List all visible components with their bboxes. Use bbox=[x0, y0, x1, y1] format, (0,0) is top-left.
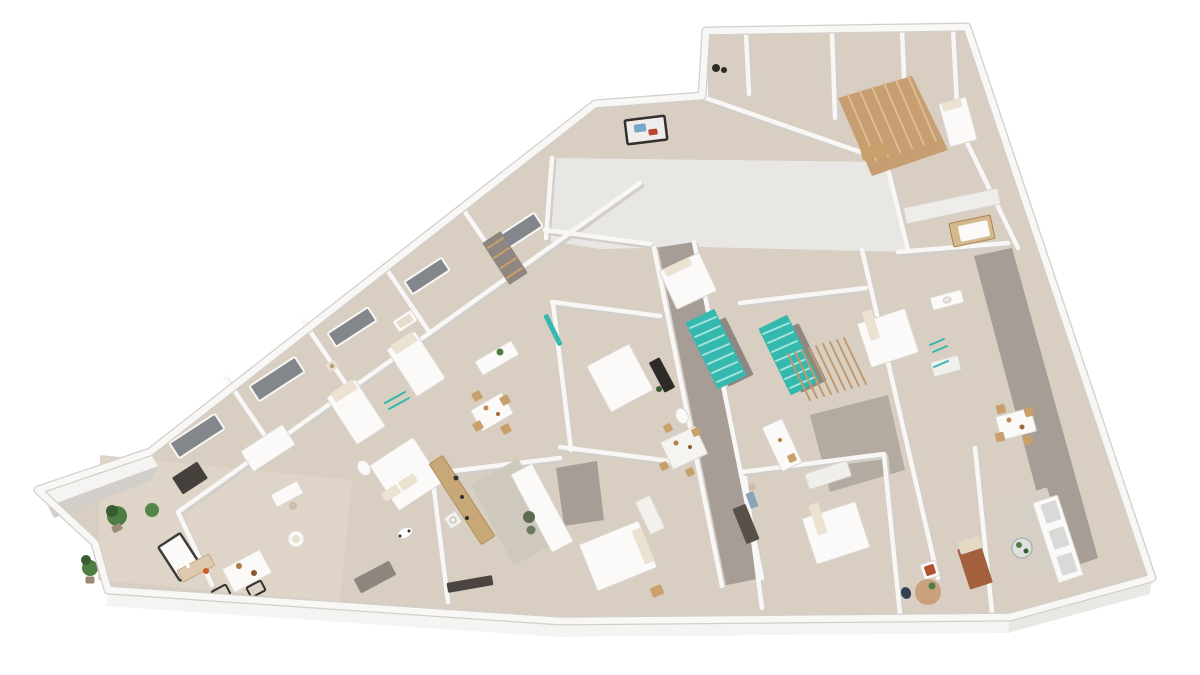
rug-nook bbox=[915, 579, 941, 605]
plate-4a bbox=[1007, 418, 1012, 423]
sideboard-decor-2 bbox=[460, 495, 464, 499]
plate-1b bbox=[496, 412, 500, 416]
plate-1a bbox=[484, 406, 489, 411]
plant-island bbox=[497, 349, 504, 356]
plant-bush-1b bbox=[106, 505, 118, 517]
wall-top-room-2 bbox=[746, 33, 749, 94]
plant-counter bbox=[656, 386, 662, 392]
plate-3a bbox=[778, 438, 782, 442]
pouf-2 bbox=[527, 526, 536, 535]
sconce-1 bbox=[712, 64, 720, 72]
console-decor-orange bbox=[203, 568, 209, 574]
plate-2a bbox=[674, 441, 679, 446]
plant-tall-2 bbox=[81, 555, 91, 565]
lamp-dot-1 bbox=[399, 535, 402, 538]
console-decor-white bbox=[186, 564, 190, 568]
lamp-dot-2 bbox=[408, 530, 411, 533]
corridor-entry bbox=[556, 461, 604, 526]
glass-coffee-table bbox=[1012, 538, 1032, 558]
floor-plan-render bbox=[0, 0, 1200, 675]
plant-pot-2 bbox=[86, 577, 95, 584]
plant-coffee-table-2 bbox=[1024, 549, 1029, 554]
sideboard-decor-3 bbox=[465, 516, 469, 520]
plate-5b bbox=[251, 570, 257, 576]
plant-bush-2 bbox=[145, 503, 159, 517]
sideboard-decor-1 bbox=[454, 476, 459, 481]
picture-art-blue bbox=[634, 123, 647, 132]
lamp-1 bbox=[330, 364, 334, 368]
plant-nook bbox=[929, 583, 936, 590]
picture-art-red bbox=[648, 128, 658, 135]
person-head bbox=[749, 484, 756, 491]
desk-chair bbox=[289, 502, 297, 510]
floor-plan-canvas bbox=[0, 0, 1200, 675]
plate-2b bbox=[688, 445, 692, 449]
wall-top-room-3 bbox=[832, 31, 835, 118]
round-table-top bbox=[292, 535, 300, 543]
plate-5a bbox=[236, 563, 242, 569]
plant-coffee-table bbox=[1016, 542, 1022, 548]
sconce-2 bbox=[721, 67, 727, 73]
pouf-1 bbox=[523, 511, 535, 523]
plate-4b bbox=[1020, 425, 1025, 430]
